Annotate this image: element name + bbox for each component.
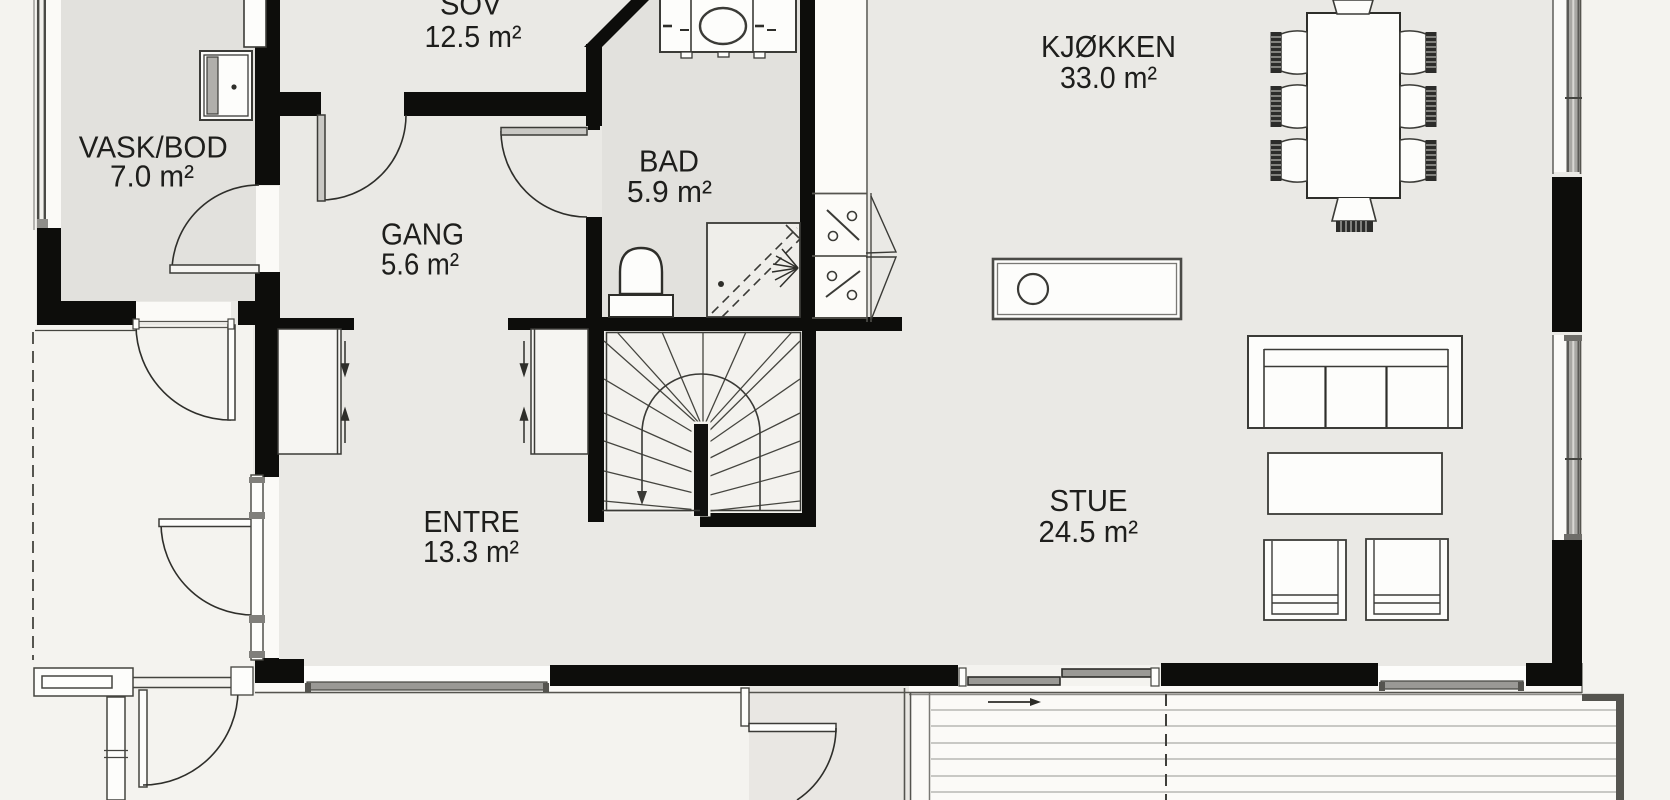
svg-text:5.9 m²: 5.9 m² <box>627 174 712 209</box>
svg-text:24.5 m²: 24.5 m² <box>1039 514 1139 549</box>
svg-text:7.0 m²: 7.0 m² <box>110 159 194 194</box>
svg-text:12.5 m²: 12.5 m² <box>425 19 522 54</box>
svg-text:33.0 m²: 33.0 m² <box>1060 60 1157 95</box>
svg-text:13.3 m²: 13.3 m² <box>423 534 519 569</box>
svg-text:KJØKKEN: KJØKKEN <box>1041 29 1176 64</box>
svg-text:5.6 m²: 5.6 m² <box>381 247 459 282</box>
svg-text:STUE: STUE <box>1050 483 1128 518</box>
